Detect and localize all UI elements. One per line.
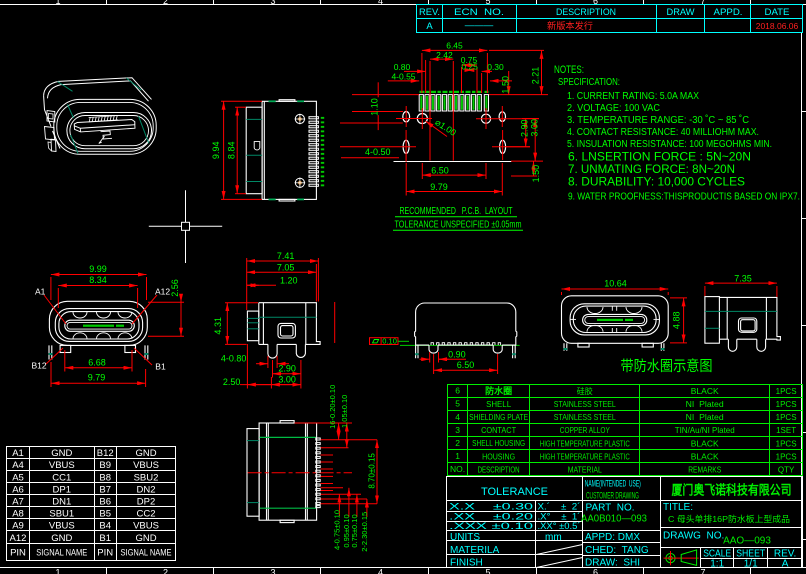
svg-text:A: A — [426, 21, 433, 32]
svg-text:0.25: 0.25 — [461, 62, 478, 72]
svg-text:1PCS: 1PCS — [776, 452, 797, 461]
svg-text:DP2: DP2 — [137, 496, 155, 507]
svg-text:7.05: 7.05 — [277, 262, 295, 272]
svg-text:B5: B5 — [99, 509, 111, 520]
svg-text:REV.: REV. — [419, 7, 440, 18]
svg-text:B12: B12 — [97, 448, 114, 459]
svg-text:DRAW: SHI: DRAW: SHI — [585, 558, 640, 569]
svg-text:GND: GND — [135, 448, 156, 459]
svg-text:DATE: DATE — [765, 7, 790, 18]
svg-text:B9: B9 — [99, 460, 111, 471]
svg-text:RECOMMENDED P.C.B. LAYOUT: RECOMMENDED P.C.B. LAYOUT — [400, 205, 513, 217]
svg-text:1.10: 1.10 — [370, 98, 380, 116]
svg-text:带防水圈示意图: 带防水圈示意图 — [621, 357, 713, 375]
svg-text:A1: A1 — [12, 448, 24, 459]
svg-text:DRAW: DRAW — [667, 7, 695, 18]
svg-text:8.34: 8.34 — [89, 275, 107, 285]
svg-text:MATERIAL: MATERIAL — [568, 466, 602, 475]
svg-text:2: 2 — [455, 438, 460, 448]
svg-text:SHELL: SHELL — [486, 400, 512, 409]
svg-text:6.68: 6.68 — [88, 357, 106, 367]
svg-text:BLACK: BLACK — [691, 438, 719, 448]
svg-text:STAINLESS STEEL: STAINLESS STEEL — [554, 412, 616, 422]
svg-text:1PCS: 1PCS — [776, 400, 797, 409]
svg-text:TIN/Au/NI Plated: TIN/Au/NI Plated — [675, 425, 735, 435]
svg-text:2.50: 2.50 — [223, 377, 241, 387]
svg-text:B12: B12 — [32, 361, 47, 371]
svg-text:SHIELDING PLATE: SHIELDING PLATE — [469, 413, 528, 422]
svg-text:PIN: PIN — [10, 547, 26, 558]
svg-text:TOLERANCE: TOLERANCE — [481, 486, 548, 498]
svg-text:A1: A1 — [35, 287, 46, 297]
svg-text:3: 3 — [270, 568, 275, 574]
svg-text:CONTACT: CONTACT — [481, 426, 516, 435]
svg-text:8. DURABILITY: 10,000 CYC: 8. DURABILITY: 10,000 CYCLES — [568, 175, 745, 189]
svg-text:16-0.20±0.10: 16-0.20±0.10 — [328, 385, 337, 429]
svg-text:HIGH TEMPERATURE PLASTIC: HIGH TEMPERATURE PLASTIC — [540, 439, 630, 448]
svg-text:C 母头单排16P防水板上型成品: C 母头单排16P防水板上型成品 — [668, 514, 790, 524]
svg-text:防水圈: 防水圈 — [485, 385, 512, 396]
svg-text:SPECIFICATION:: SPECIFICATION: — [558, 77, 620, 88]
svg-text:DN1: DN1 — [52, 496, 71, 507]
svg-text:⌀1.00: ⌀1.00 — [433, 117, 458, 138]
svg-text:1PCS: 1PCS — [776, 387, 797, 396]
svg-text:1: 1 — [55, 568, 60, 574]
svg-text:4.88: 4.88 — [672, 312, 682, 330]
svg-text:A9: A9 — [12, 521, 24, 532]
svg-text:8.84: 8.84 — [226, 142, 236, 160]
svg-text:APPD: DMX: APPD: DMX — [585, 532, 640, 543]
svg-text:5: 5 — [485, 0, 490, 6]
svg-text:mm: mm — [545, 532, 562, 543]
svg-text:7.35: 7.35 — [734, 274, 752, 284]
svg-text:2. VOLTAGE: 100 VAC: 2. VOLTAGE: 100 VAC — [567, 103, 660, 114]
svg-text:HOUSING: HOUSING — [482, 452, 515, 461]
svg-text:QTY: QTY — [778, 466, 795, 475]
svg-text:9.79: 9.79 — [88, 373, 106, 383]
svg-text:6.50: 6.50 — [431, 165, 449, 175]
svg-text:6: 6 — [455, 386, 460, 396]
svg-text:HIGH TEMPERATURE PLASTIC: HIGH TEMPERATURE PLASTIC — [540, 452, 630, 461]
svg-text:CUSTOMER DRAWING: CUSTOMER DRAWING — [586, 490, 639, 500]
svg-text:NI Plated: NI Plated — [686, 413, 724, 422]
svg-text:.XXX ±0.10: .XXX ±0.10 — [449, 521, 533, 531]
svg-text:A4: A4 — [12, 460, 24, 471]
svg-text:7.41: 7.41 — [277, 251, 295, 261]
svg-text:厦门奥飞诺科技有限公司: 厦门奥飞诺科技有限公司 — [672, 483, 792, 498]
svg-text:X.´ ± 2´: X.´ ± 2´ — [538, 502, 581, 512]
svg-text:5: 5 — [455, 399, 460, 409]
svg-text:5. INSULATION RESISTANCE: 10: 5. INSULATION RESISTANCE: 100 MEGOHMS MI… — [567, 139, 772, 150]
svg-text:VBUS: VBUS — [133, 521, 159, 532]
svg-text:A6: A6 — [12, 484, 24, 495]
svg-text:B1: B1 — [155, 362, 166, 372]
svg-text:A12: A12 — [155, 287, 170, 297]
svg-text:———: ——— — [465, 20, 494, 31]
svg-text:SBU2: SBU2 — [134, 472, 159, 483]
svg-text:2-2.30±0.15: 2-2.30±0.15 — [360, 512, 369, 552]
svg-text:2.21: 2.21 — [530, 67, 540, 85]
svg-text:4: 4 — [455, 412, 460, 422]
svg-text:DN2: DN2 — [136, 484, 155, 495]
svg-text:GND: GND — [135, 533, 156, 544]
svg-text:AA0B010—093: AA0B010—093 — [581, 513, 647, 525]
svg-text:9.99: 9.99 — [89, 264, 107, 274]
svg-text:3. TEMPERATURE RANGE: -30 ˚: 3. TEMPERATURE RANGE: -30 ˚C ~ 85 ˚C — [567, 114, 749, 126]
svg-text:9.79: 9.79 — [430, 182, 448, 192]
svg-text:2: 2 — [163, 0, 168, 6]
svg-text:0.30: 0.30 — [487, 62, 504, 72]
svg-text:1SET: 1SET — [776, 426, 796, 435]
svg-text:6.50: 6.50 — [457, 360, 475, 370]
svg-text:4-0.80: 4-0.80 — [221, 354, 247, 364]
svg-text:5: 5 — [485, 568, 490, 574]
svg-text:1:1: 1:1 — [710, 559, 724, 570]
svg-text:2018.06.06: 2018.06.06 — [756, 21, 799, 31]
svg-text:DRAWG NO.: DRAWG NO. — [663, 531, 724, 542]
svg-text:B8: B8 — [99, 472, 111, 483]
svg-text:.XX° ±0.5´: .XX° ±0.5´ — [538, 521, 581, 531]
svg-text:B7: B7 — [99, 484, 111, 495]
svg-text:UNITS: UNITS — [450, 532, 480, 543]
svg-text:2: 2 — [163, 568, 168, 574]
svg-text:2.42: 2.42 — [436, 50, 453, 60]
svg-text:4-0.50: 4-0.50 — [365, 147, 391, 157]
svg-text:CC1: CC1 — [52, 472, 71, 483]
svg-text:FINISH: FINISH — [450, 558, 483, 569]
svg-text:4: 4 — [378, 0, 383, 6]
svg-text:PIN: PIN — [97, 547, 113, 558]
svg-text:1/1: 1/1 — [744, 559, 758, 570]
svg-text:BLACK: BLACK — [691, 386, 719, 396]
svg-text:VBUS: VBUS — [49, 460, 75, 471]
svg-text:3.00: 3.00 — [529, 119, 539, 137]
svg-text:CC2: CC2 — [136, 509, 155, 520]
svg-text:A7: A7 — [12, 496, 24, 507]
svg-text:1.50: 1.50 — [531, 165, 541, 183]
svg-text:MATERILA: MATERILA — [450, 545, 500, 556]
svg-text:1.05±0.10: 1.05±0.10 — [340, 395, 349, 428]
svg-text:CHED: TANG: CHED: TANG — [585, 545, 649, 556]
svg-text:NI Plated: NI Plated — [686, 400, 724, 409]
svg-text:ECN NO.: ECN NO. — [454, 7, 504, 18]
svg-text:B6: B6 — [99, 496, 111, 507]
svg-text:SHELL HOUSING: SHELL HOUSING — [472, 439, 525, 448]
svg-text:STAINLESS STEEL: STAINLESS STEEL — [554, 399, 616, 409]
svg-text:1: 1 — [455, 451, 460, 461]
svg-text:.X° ± 1´: .X° ± 1´ — [538, 512, 581, 522]
svg-text:2.90: 2.90 — [278, 364, 296, 374]
svg-text:9.94: 9.94 — [211, 142, 221, 160]
svg-text:3: 3 — [455, 425, 460, 435]
svg-text:4. CONTACT RESISTANCE: 40 M: 4. CONTACT RESISTANCE: 40 MILLIOHM MAX. — [567, 127, 759, 138]
svg-text:10.64: 10.64 — [604, 279, 627, 289]
svg-text:DESCRIPTION: DESCRIPTION — [478, 465, 520, 474]
svg-text:4-0.75±0.10: 4-0.75±0.10 — [332, 510, 341, 550]
svg-text:新版本发行: 新版本发行 — [547, 20, 593, 31]
svg-text:8.70±0.15: 8.70±0.15 — [368, 453, 377, 489]
svg-text:COPPER ALLOY: COPPER ALLOY — [560, 425, 610, 435]
svg-text:DP1: DP1 — [53, 484, 71, 495]
svg-text:X.X ±0.30: X.X ±0.30 — [449, 502, 533, 512]
svg-text:A: A — [782, 559, 789, 570]
svg-text:0.10: 0.10 — [382, 337, 397, 346]
svg-text:9. WATER PROOFNESS:THISPRODUC: 9. WATER PROOFNESS:THISPRODUCTIS BASED O… — [568, 192, 800, 203]
svg-text:NAME(INTENDED USE): NAME(INTENDED USE) — [585, 479, 641, 490]
svg-text:硅胶: 硅胶 — [577, 386, 593, 396]
svg-text:AAO—093: AAO—093 — [723, 536, 771, 547]
svg-text:3.00: 3.00 — [278, 375, 296, 385]
svg-text:1: 1 — [55, 0, 60, 6]
svg-text:SIGNAL NAME: SIGNAL NAME — [121, 547, 172, 558]
svg-text:APPD.: APPD. — [714, 7, 743, 18]
svg-text:1PCS: 1PCS — [776, 413, 797, 422]
svg-text:3: 3 — [270, 0, 275, 6]
svg-text:1.20: 1.20 — [280, 275, 298, 285]
svg-text:2.90: 2.90 — [520, 119, 530, 137]
svg-text:A12: A12 — [10, 533, 27, 544]
svg-text:SIGNAL NAME: SIGNAL NAME — [36, 547, 87, 558]
svg-text:2.56: 2.56 — [170, 279, 180, 297]
svg-text:GND: GND — [51, 448, 72, 459]
svg-text:.XX ±0.20: .XX ±0.20 — [449, 512, 533, 522]
svg-text:4-0.55: 4-0.55 — [391, 71, 415, 81]
svg-text:7: 7 — [700, 568, 705, 574]
svg-text:GND: GND — [51, 533, 72, 544]
svg-text:TITLE:: TITLE: — [663, 502, 693, 513]
svg-text:TOLERANCE UNSPECIFIED ±0.05mm: TOLERANCE UNSPECIFIED ±0.05mm — [395, 219, 522, 231]
svg-text:NO.: NO. — [450, 464, 465, 474]
svg-text:4: 4 — [378, 568, 383, 574]
svg-text:B4: B4 — [99, 521, 111, 532]
svg-text:1PCS: 1PCS — [776, 439, 797, 448]
svg-text:BLACK: BLACK — [691, 451, 719, 461]
svg-text:0.75±0.10: 0.75±0.10 — [350, 514, 359, 547]
svg-text:VBUS: VBUS — [133, 460, 159, 471]
svg-text:REMARKS: REMARKS — [688, 465, 721, 475]
svg-text:SBU1: SBU1 — [49, 509, 74, 520]
svg-text:DESCRIPTION: DESCRIPTION — [556, 7, 616, 18]
svg-text:1.50: 1.50 — [501, 76, 511, 94]
svg-text:1. CURRENT RATING: 5.0A MAX: 1. CURRENT RATING: 5.0A MAX — [567, 91, 699, 102]
svg-text:B1: B1 — [99, 533, 111, 544]
svg-text:NOTES:: NOTES: — [554, 64, 584, 76]
svg-text:VBUS: VBUS — [49, 521, 75, 532]
svg-text:A5: A5 — [12, 472, 24, 483]
svg-text:4.31: 4.31 — [213, 317, 223, 335]
svg-text:A8: A8 — [12, 509, 24, 520]
svg-text:0.90: 0.90 — [448, 350, 466, 360]
svg-text:6: 6 — [593, 0, 598, 6]
